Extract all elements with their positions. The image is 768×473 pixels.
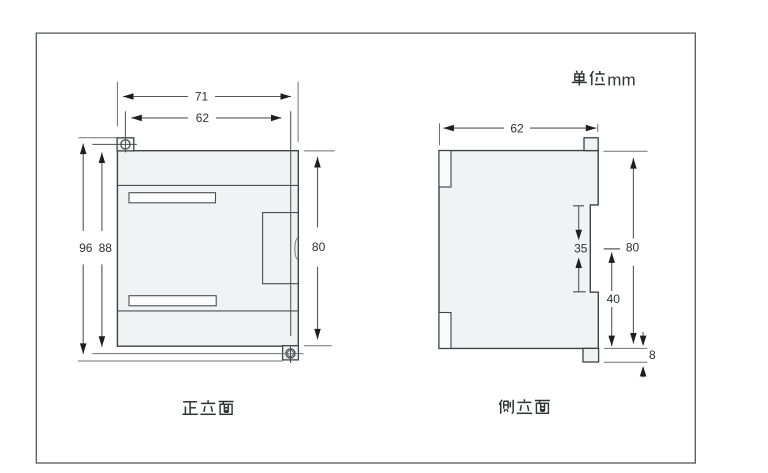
svg-text:80: 80 xyxy=(626,240,640,254)
svg-text:62: 62 xyxy=(510,121,524,135)
svg-text:96: 96 xyxy=(79,241,93,255)
svg-text:88: 88 xyxy=(99,241,113,255)
svg-text:71: 71 xyxy=(195,90,209,104)
svg-text:40: 40 xyxy=(607,292,621,306)
svg-text:8: 8 xyxy=(649,348,656,362)
svg-text:mm: mm xyxy=(607,70,635,89)
svg-text:80: 80 xyxy=(312,240,326,254)
svg-text:35: 35 xyxy=(574,241,588,255)
svg-text:62: 62 xyxy=(196,111,210,125)
